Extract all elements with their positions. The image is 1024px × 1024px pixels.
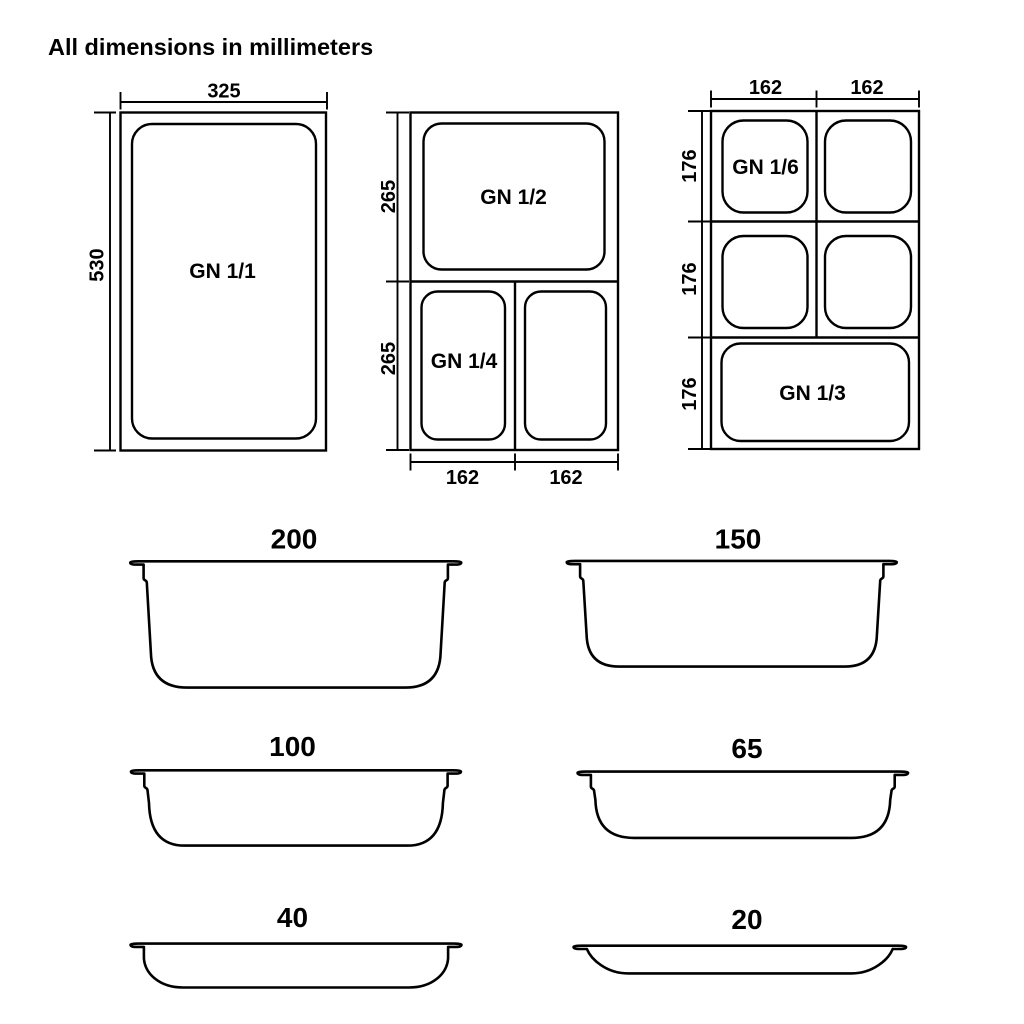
svg-text:176: 176 (679, 262, 701, 295)
svg-text:GN 1/4: GN 1/4 (431, 350, 498, 373)
svg-text:GN 1/2: GN 1/2 (480, 186, 547, 209)
svg-text:162: 162 (850, 77, 883, 99)
svg-text:GN 1/6: GN 1/6 (732, 156, 799, 179)
svg-text:150: 150 (715, 524, 762, 555)
svg-text:265: 265 (378, 180, 400, 213)
svg-text:40: 40 (277, 902, 308, 933)
svg-text:325: 325 (207, 81, 240, 103)
svg-text:All dimensions in millimeters: All dimensions in millimeters (48, 34, 373, 60)
svg-text:GN 1/3: GN 1/3 (779, 382, 846, 405)
svg-text:176: 176 (679, 149, 701, 182)
svg-text:176: 176 (679, 377, 701, 410)
svg-text:GN 1/1: GN 1/1 (189, 260, 256, 283)
svg-text:162: 162 (549, 467, 582, 489)
svg-text:100: 100 (269, 731, 316, 762)
svg-text:65: 65 (731, 733, 762, 764)
svg-text:162: 162 (446, 467, 479, 489)
svg-text:20: 20 (731, 904, 762, 935)
svg-text:530: 530 (87, 248, 109, 281)
svg-text:162: 162 (749, 77, 782, 99)
svg-text:265: 265 (378, 342, 400, 375)
svg-text:200: 200 (271, 524, 318, 555)
